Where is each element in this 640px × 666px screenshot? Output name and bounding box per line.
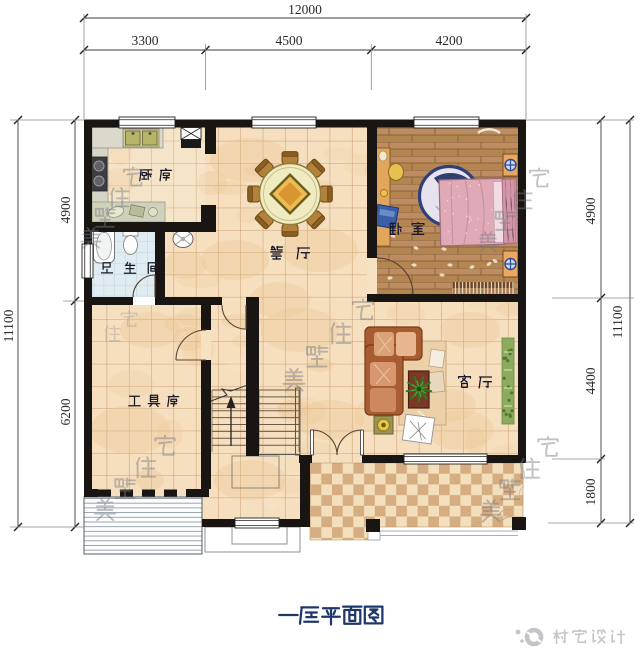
svg-text:4900: 4900 (583, 197, 598, 224)
svg-text:4400: 4400 (583, 367, 598, 394)
svg-text:12000: 12000 (288, 2, 322, 17)
svg-text:11100: 11100 (1, 309, 16, 342)
svg-text:11100: 11100 (610, 305, 625, 338)
svg-text:3300: 3300 (132, 33, 159, 48)
svg-text:6200: 6200 (58, 398, 73, 425)
svg-text:4900: 4900 (58, 196, 73, 223)
svg-text:4500: 4500 (276, 33, 303, 48)
svg-text:4200: 4200 (436, 33, 463, 48)
svg-text:1800: 1800 (583, 478, 598, 505)
